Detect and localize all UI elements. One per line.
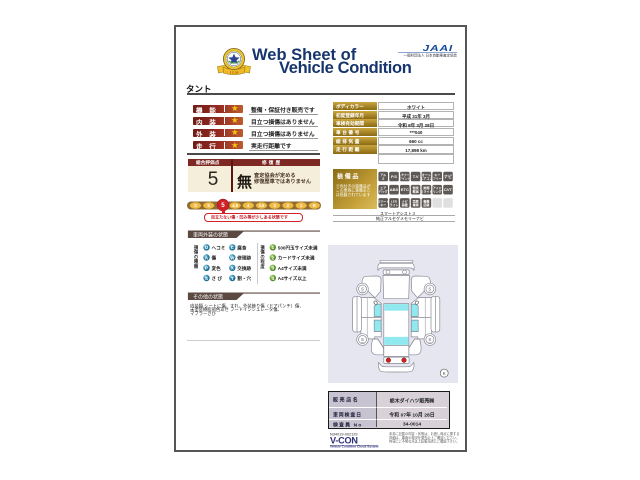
svg-text:装着: 装着 — [402, 201, 408, 206]
svg-text:S: S — [194, 203, 197, 208]
svg-text:S: S — [428, 286, 431, 291]
svg-text:車両外装の状態: 車両外装の状態 — [193, 231, 228, 238]
svg-text:ミ: ミ — [382, 176, 385, 180]
svg-text:S: S — [205, 276, 208, 281]
svg-text:ライト: ライト — [389, 201, 398, 206]
svg-text:ウインド: ウインド — [399, 175, 411, 180]
svg-text:R: R — [313, 203, 316, 208]
svg-text:K: K — [442, 371, 445, 376]
svg-text:A4サイズ未満: A4サイズ未満 — [278, 265, 307, 272]
svg-text:スライド: スライド — [420, 188, 432, 193]
svg-text:ナビ: ナビ — [444, 172, 452, 178]
svg-text:ABS: ABS — [390, 187, 399, 192]
svg-text:割・穴: 割・穴 — [237, 275, 251, 282]
svg-text:ヘコミ: ヘコミ — [212, 245, 226, 250]
svg-text:変色: 変色 — [212, 265, 222, 272]
svg-text:リング: リング — [433, 188, 442, 193]
svg-text:カードサイズ未満: カードサイズ未満 — [278, 255, 315, 262]
svg-text:3.5: 3.5 — [259, 203, 265, 208]
svg-text:車両: 車両 — [413, 201, 419, 206]
svg-text:その他の状態: その他の状態 — [193, 293, 223, 300]
svg-text:5: 5 — [221, 202, 225, 209]
svg-text:S: S — [361, 286, 364, 291]
svg-text:S: S — [361, 337, 364, 342]
svg-text:修理跡: 修理跡 — [236, 255, 251, 262]
svg-text:4.5: 4.5 — [232, 203, 238, 208]
svg-text:交換跡: 交換跡 — [237, 265, 251, 272]
svg-text:T.V: T.V — [413, 173, 419, 178]
svg-text:軽減: 軽減 — [413, 188, 419, 193]
svg-text:傷: 傷 — [211, 255, 217, 262]
svg-text:キー: キー — [380, 202, 386, 206]
svg-text:U: U — [205, 245, 208, 250]
svg-text:X: X — [231, 266, 234, 271]
svg-text:記録: 記録 — [423, 201, 430, 206]
svg-text:CVT: CVT — [444, 187, 453, 192]
svg-text:ETC: ETC — [401, 187, 409, 192]
svg-text:P: P — [205, 266, 208, 271]
svg-text:T: T — [231, 276, 234, 281]
svg-text:損傷の種類: 損傷の種類 — [193, 244, 199, 270]
svg-text:S: S — [428, 337, 431, 342]
svg-text:腐食: 腐食 — [237, 244, 247, 251]
svg-text:エアコン: エアコン — [420, 175, 432, 180]
svg-text:A4サイズ以上: A4サイズ以上 — [278, 275, 307, 282]
svg-text:フリー: フリー — [433, 175, 442, 180]
svg-text:さ び: さ び — [212, 275, 223, 282]
svg-text:J C I B: J C I B — [230, 71, 239, 75]
svg-text:P.S: P.S — [391, 173, 397, 178]
svg-text:バッグ: バッグ — [379, 188, 388, 193]
svg-text:500円玉サイズ未満: 500円玉サイズ未満 — [278, 244, 318, 251]
svg-text:損傷の程度: 損傷の程度 — [259, 244, 265, 270]
